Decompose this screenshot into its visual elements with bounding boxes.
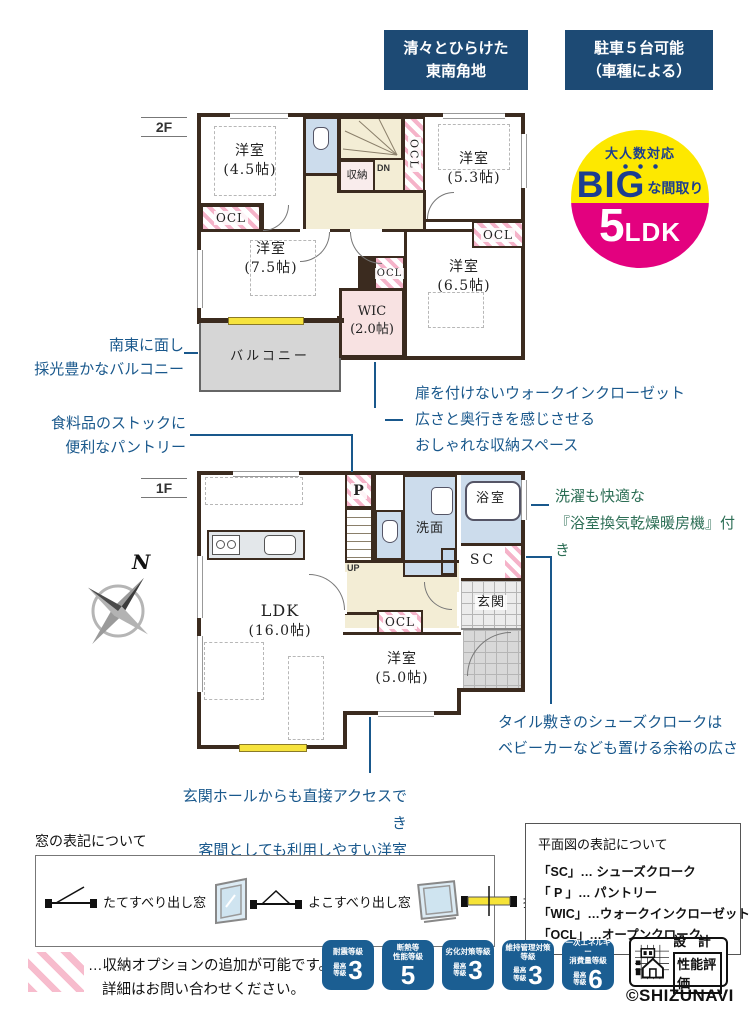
- badge-deterioration: 劣化対策等級 最高等級 3: [442, 940, 494, 990]
- performance-badges: 耐震等級 最高等級 3 断熱等性能等級 5 劣化対策等級 最高等級 3 維持管理…: [322, 940, 614, 990]
- pantry-label: P: [351, 483, 367, 499]
- ocl-label: OCL: [383, 615, 417, 629]
- ocl-label: OCL: [481, 228, 515, 242]
- design-certification-logo: 設 計 性能評価: [629, 937, 728, 987]
- annotation-bath: 洗濯も快適な 『浴室換気乾燥暖房機』付き: [555, 483, 745, 564]
- wall: [337, 117, 340, 193]
- stair-fan-icon: [341, 119, 401, 158]
- badge-ldk-unit: LDK: [625, 219, 681, 246]
- burner-icon: [227, 540, 236, 549]
- open-closet-45: OCL: [201, 205, 261, 231]
- window-legend-item: たてすべり出し窓: [44, 877, 249, 925]
- connector-line: [369, 717, 371, 773]
- svg-text:N: N: [131, 550, 151, 574]
- window-type-label: たてすべり出し窓: [103, 892, 206, 911]
- floor-label-2f: 2F: [141, 117, 187, 137]
- staircase-2f: [339, 117, 403, 160]
- wall: [345, 560, 459, 563]
- stairs-up-label: UP: [347, 563, 360, 573]
- plan-legend-item: 「 P 」… パントリー: [538, 883, 728, 904]
- plan-legend-item: 「WIC」…ウォークインクローゼット: [538, 904, 728, 925]
- pantry: P: [345, 473, 373, 508]
- connector-line: [184, 352, 198, 354]
- wic-label: WIC (2.0帖): [339, 303, 405, 338]
- window-symbol: [197, 636, 203, 692]
- banner-line: 東南角地: [384, 63, 528, 81]
- connector-line: [550, 556, 552, 704]
- wall: [337, 190, 426, 193]
- window-symbol: [230, 113, 288, 119]
- annotation-shoecloak: タイル敷きのシューズクロークは ベビーカーなども置ける余裕の広さ: [498, 710, 748, 762]
- shoe-cloak-hatch: [505, 546, 521, 578]
- window-symbol: [233, 471, 299, 477]
- bathroom-label: 浴室: [463, 490, 519, 508]
- ocl-label: OCL: [408, 137, 421, 172]
- wall: [199, 203, 263, 206]
- ocl-label: OCL: [214, 211, 248, 225]
- sliding-window-symbol: [228, 317, 304, 325]
- wall: [373, 475, 376, 562]
- room-label: 洋室(7.5帖): [212, 240, 330, 278]
- plan-legend-title: 平面図の表記について: [538, 834, 728, 853]
- floorplan-flyer: 清々とひらけた 東南角地 駐車５台可能 （車種による） 大人数対応 BIG な間…: [0, 0, 750, 1011]
- wall: [425, 219, 525, 222]
- badge-ldk-number: 5: [599, 205, 625, 246]
- badge-energy: 一次エネルギー消費量等級 最高等級 6: [562, 940, 614, 990]
- plan-legend-item: 「SC」… シューズクローク: [538, 862, 728, 883]
- badge-seismic: 耐震等級 最高等級 3: [322, 940, 374, 990]
- cert-design-label: 設 計: [673, 931, 722, 950]
- furniture-outline: [204, 642, 264, 700]
- wall: [423, 190, 426, 231]
- room-label: 洋室(5.3帖): [430, 150, 518, 188]
- room-label: 洋室(6.5帖): [414, 258, 514, 296]
- sink-icon: [264, 535, 296, 555]
- furniture-outline: [288, 656, 324, 740]
- casement-window-symbol: [44, 884, 98, 918]
- wall: [337, 158, 405, 160]
- copyright: ©SHIZUNAVI: [626, 986, 734, 1006]
- door-opening: [457, 592, 461, 626]
- storage-option-note: …収納オプションの追加が可能です。 詳細はお問い合わせください。: [88, 954, 333, 1002]
- awning-window-symbol: [249, 884, 303, 918]
- window-legend-title: 窓の表記について: [35, 831, 147, 851]
- room-label: LDK(16.0帖): [230, 600, 330, 640]
- badge-catch: 大人数対応: [605, 143, 675, 162]
- open-closet-vertical: OCL: [403, 117, 425, 192]
- floor-label-1f: 1F: [141, 478, 187, 498]
- burner-icon: [216, 540, 225, 549]
- window-legend-item: よこすべり出し窓: [249, 877, 460, 925]
- badge-insulation: 断熱等性能等級 5: [382, 940, 434, 990]
- connector-line: [351, 434, 353, 472]
- open-closet-1f: OCL: [377, 610, 423, 634]
- wic-name: WIC: [339, 303, 405, 321]
- wall: [199, 229, 473, 232]
- connector-line: [190, 434, 353, 436]
- casement-window-icon: [211, 877, 249, 925]
- window-symbol: [443, 113, 505, 119]
- window-symbol: [197, 556, 203, 618]
- wall: [345, 612, 379, 615]
- badge-big-text: BIG: [577, 167, 646, 202]
- certified-house-icon: [635, 942, 669, 982]
- balcony-label: バルコニー: [199, 348, 341, 366]
- open-closet-65: OCL: [472, 221, 524, 248]
- stairs-dn-label: DN: [377, 163, 390, 173]
- badge-tail-text: な間取り: [647, 178, 703, 202]
- washbasin-icon: [431, 487, 453, 515]
- toilet-icon: [382, 520, 398, 543]
- annotation-guest-room: 玄関ホールからも直接アクセスでき 客間としても利用しやすい洋室: [170, 783, 407, 864]
- room-label: 洋室(5.0帖): [352, 650, 452, 688]
- banner-line: 清々とひらけた: [384, 40, 528, 58]
- banner-line: 駐車５台可能: [565, 40, 713, 58]
- room-label: 洋室(4.5帖): [206, 142, 294, 180]
- 5ldk-badge: 大人数対応 BIG な間取り 5 LDK: [571, 130, 709, 268]
- ocl-label: OCL: [375, 268, 405, 279]
- banner-parking: 駐車５台可能 （車種による）: [565, 30, 713, 90]
- connector-line: [374, 362, 376, 408]
- window-type-label: よこすべり出し窓: [308, 892, 411, 911]
- washroom-label: 洗面: [405, 520, 455, 538]
- window-symbol: [521, 480, 527, 520]
- wic-size: (2.0帖): [339, 321, 405, 339]
- furniture-outline: [428, 292, 484, 328]
- banner-corner-lot: 清々とひらけた 東南角地: [384, 30, 528, 90]
- window-symbol: [197, 250, 203, 308]
- badge-maintenance: 維持管理対策等級 最高等級 3: [502, 940, 554, 990]
- hatch-swatch: [28, 952, 84, 992]
- connector-line: [531, 504, 549, 506]
- sliding-door-symbol: [460, 884, 518, 918]
- annotation-pantry: 食料品のストックに 便利なパントリー: [30, 412, 186, 460]
- awning-window-icon: [416, 877, 460, 925]
- wall: [303, 173, 340, 176]
- sliding-window-symbol: [239, 744, 307, 752]
- annotation-wic: 扉を付けないウォークインクローゼット 広さと奥行きを感じさせる おしゃれな収納ス…: [415, 381, 715, 459]
- closet-label: 収納: [339, 168, 375, 182]
- wall: [404, 229, 407, 360]
- shoe-cloak-label: SC: [461, 551, 505, 570]
- toilet-icon: [313, 127, 329, 150]
- banner-line: （車種による）: [565, 63, 713, 81]
- furniture-outline: [205, 477, 303, 505]
- connector-line: [526, 556, 552, 558]
- annotation-balcony: 南東に面し 採光豊かなバルコニー: [28, 334, 184, 382]
- window-symbol: [521, 134, 527, 188]
- connector-line: [385, 419, 403, 421]
- entrance-label: 玄関: [461, 594, 521, 612]
- window-legend-box: たてすべり出し窓 よこすべり出し窓: [35, 855, 495, 947]
- staircase-1f: [345, 508, 373, 562]
- compass-icon: N: [72, 545, 172, 653]
- window-symbol: [378, 711, 434, 717]
